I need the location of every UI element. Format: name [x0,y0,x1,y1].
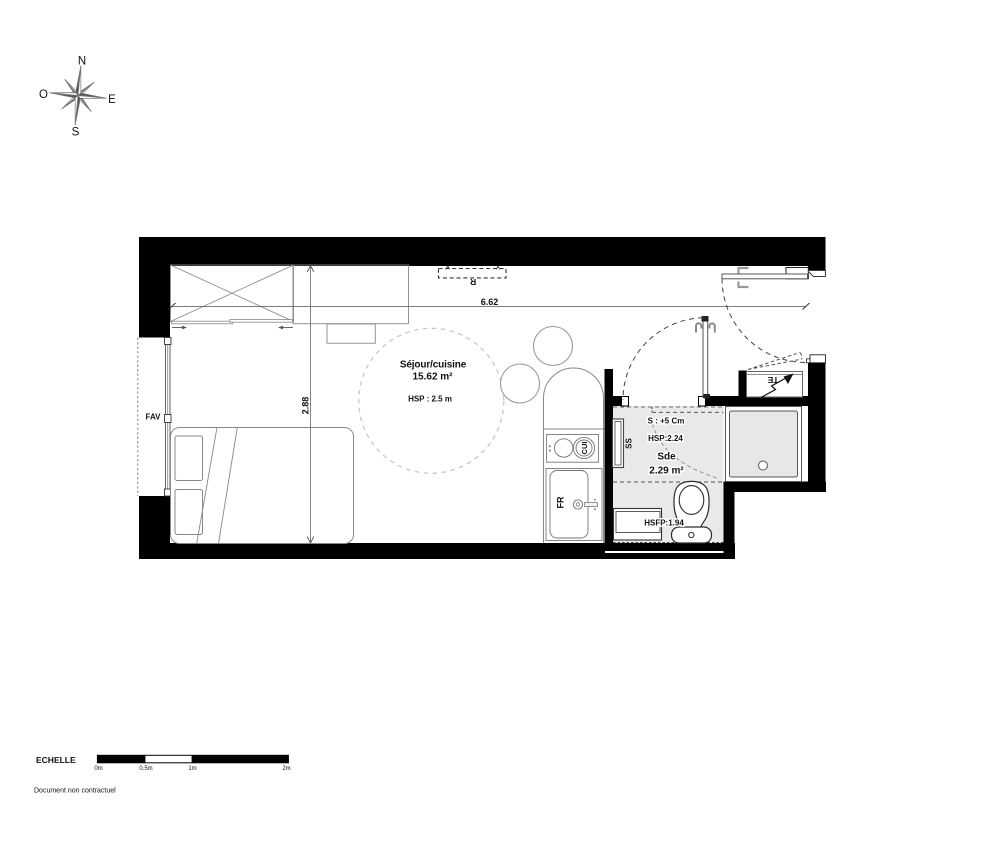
svg-text:E: E [108,94,116,106]
svg-text:FAV: FAV [146,413,162,422]
svg-text:0m: 0m [94,766,102,772]
svg-text:CUI: CUI [580,442,589,455]
svg-text:Séjour/cuisine: Séjour/cuisine [400,359,467,370]
svg-text:HSP : 2.5 m: HSP : 2.5 m [408,395,452,404]
svg-text:N: N [78,56,86,68]
svg-text:ECHELLE: ECHELLE [36,755,76,765]
svg-text:2.88: 2.88 [300,397,310,415]
svg-text:HSFP:1.94: HSFP:1.94 [644,519,684,528]
svg-text:2.29 m²: 2.29 m² [649,466,684,477]
svg-text:S: S [72,127,80,139]
svg-text:FR: FR [556,496,566,508]
svg-text:2m: 2m [282,766,290,772]
svg-text:Sde: Sde [657,452,676,463]
svg-text:S : +5 Cm: S : +5 Cm [648,417,685,426]
svg-text:15.62 m²: 15.62 m² [412,372,453,383]
svg-text:SS: SS [625,438,634,449]
svg-text:O: O [39,89,48,101]
svg-text:1m: 1m [188,766,196,772]
svg-text:Document non contractuel: Document non contractuel [34,788,116,795]
svg-text:0.5m: 0.5m [139,766,152,772]
svg-text:6.62: 6.62 [481,297,499,307]
svg-text:HSP:2.24: HSP:2.24 [648,434,683,443]
svg-text:R: R [470,277,476,287]
